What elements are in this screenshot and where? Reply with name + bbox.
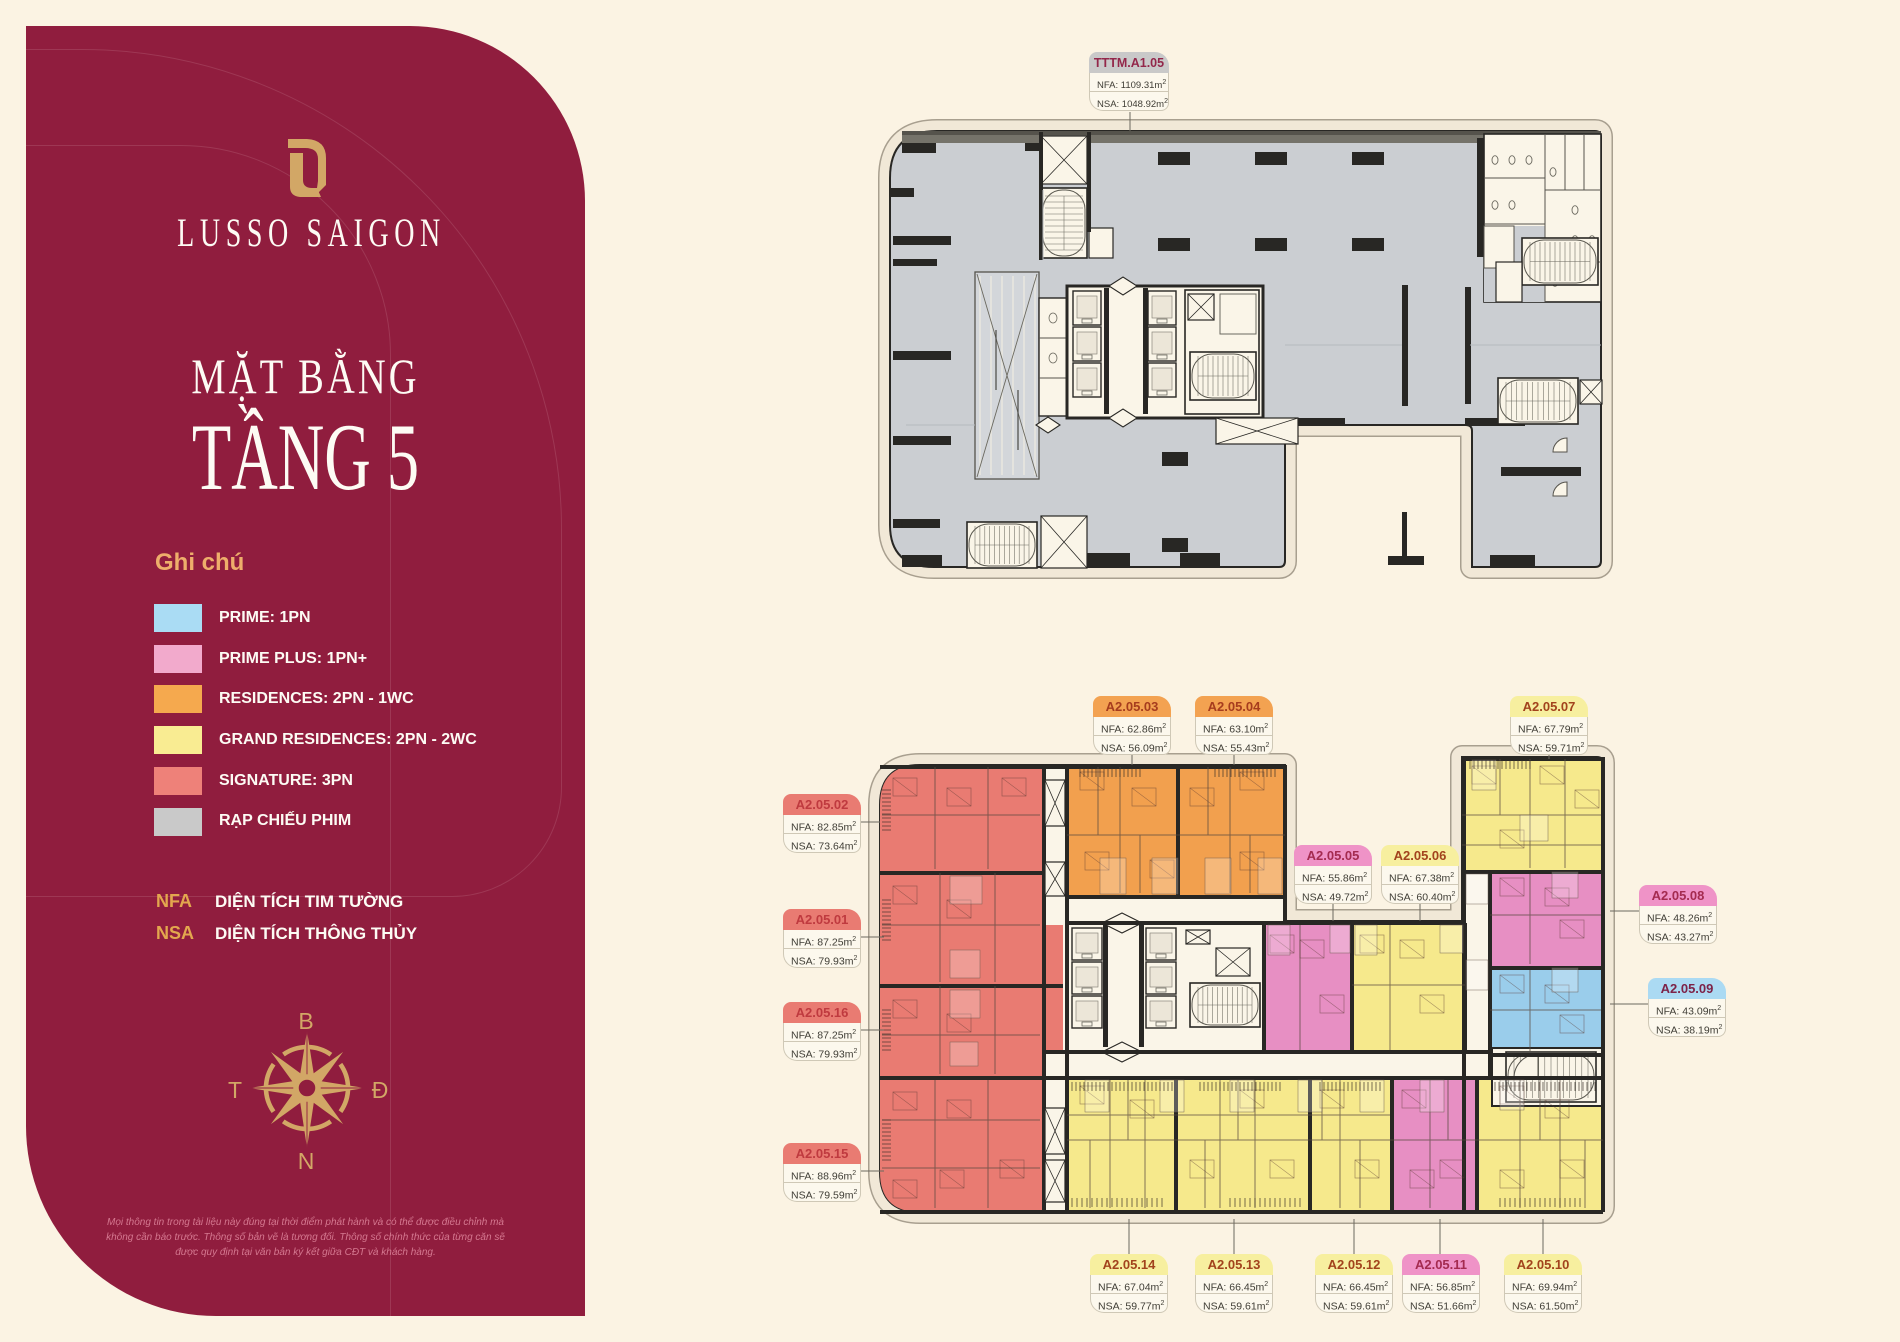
svg-text:Đ: Đ [372,1077,389,1103]
svg-text:N: N [298,1148,315,1174]
svg-text:B: B [298,1008,313,1034]
svg-text:T: T [228,1077,242,1103]
